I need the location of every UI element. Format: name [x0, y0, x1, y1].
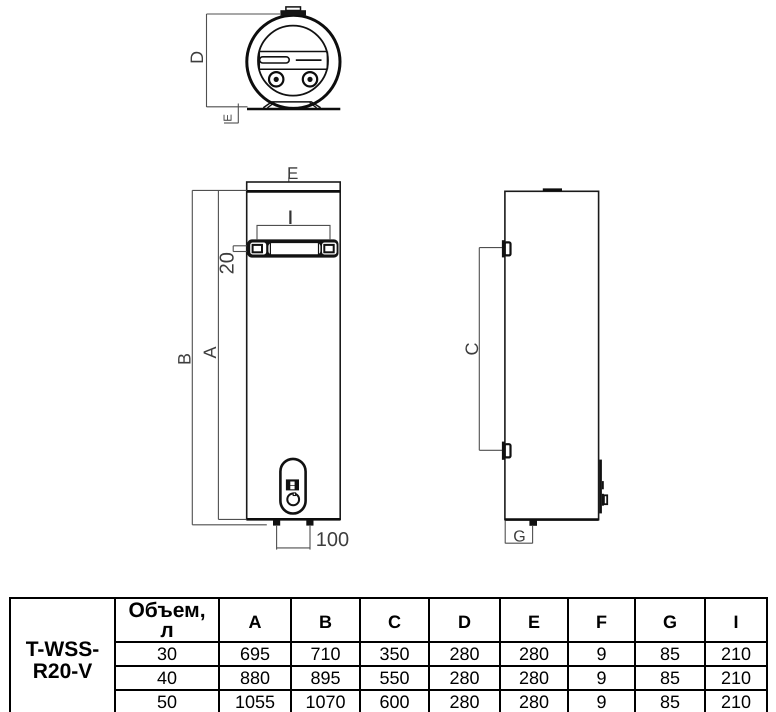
- svg-text:C: C: [462, 343, 482, 356]
- svg-text:100: 100: [316, 529, 349, 551]
- svg-text:20: 20: [216, 252, 238, 274]
- svg-text:B: B: [174, 353, 194, 365]
- svg-text:E: E: [222, 114, 234, 122]
- svg-text:A: A: [200, 346, 220, 358]
- svg-text:D: D: [187, 51, 207, 64]
- svg-text:G: G: [513, 529, 525, 546]
